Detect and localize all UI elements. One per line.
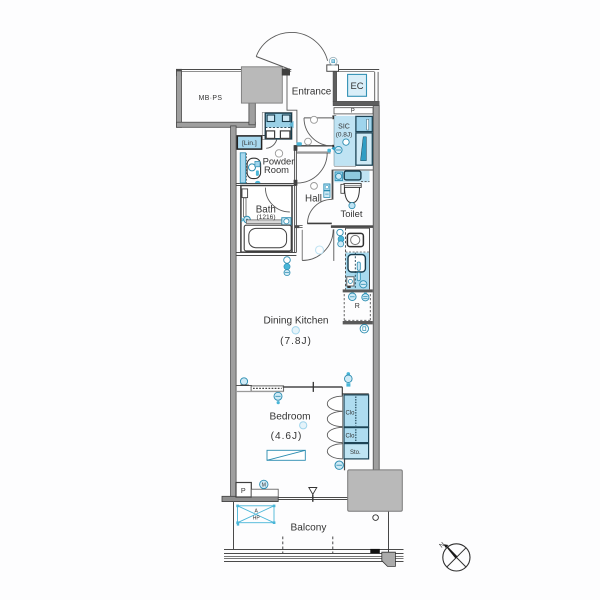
svg-text:EC: EC (350, 80, 363, 91)
svg-text:Sto.: Sto. (350, 450, 361, 456)
svg-text:Dining Kitchen: Dining Kitchen (263, 316, 328, 327)
svg-text:Hall: Hall (305, 193, 322, 204)
svg-text:R: R (355, 303, 360, 310)
svg-text:Clo: Clo (346, 410, 356, 416)
svg-text:P: P (351, 109, 355, 115)
svg-text:Toilet: Toilet (341, 208, 363, 219)
svg-text:(1216): (1216) (256, 214, 275, 221)
svg-text:Balcony: Balcony (291, 522, 328, 533)
svg-text:Entrance: Entrance (292, 87, 332, 98)
svg-text:SIC: SIC (338, 123, 350, 130)
svg-text:Clo: Clo (346, 434, 356, 440)
svg-text:P: P (241, 486, 246, 495)
svg-text:(7.8J): (7.8J) (280, 336, 312, 347)
svg-text:Room: Room (264, 164, 289, 175)
svg-text:HP: HP (253, 516, 261, 522)
svg-text:Bedroom: Bedroom (270, 412, 311, 423)
svg-text:(4.6J): (4.6J) (271, 431, 303, 442)
svg-text:[Lin.]: [Lin.] (242, 140, 257, 147)
svg-text:M: M (262, 483, 266, 489)
svg-text:MB·PS: MB·PS (199, 95, 223, 102)
svg-text:(0.8J): (0.8J) (336, 131, 353, 138)
